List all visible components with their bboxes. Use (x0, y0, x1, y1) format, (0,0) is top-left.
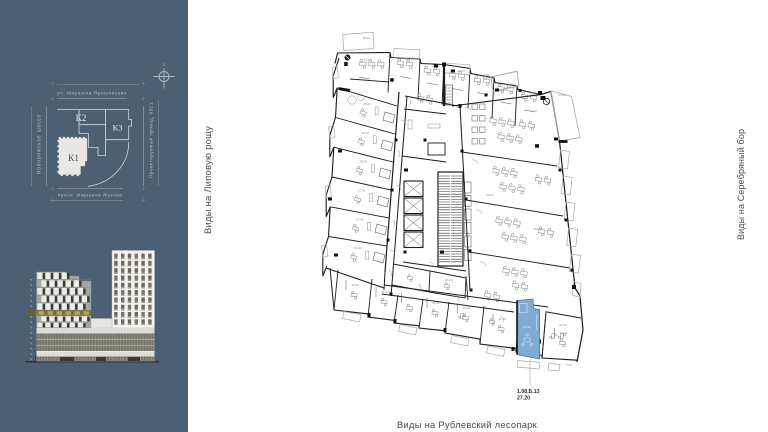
svg-text:27.00: 27.00 (524, 325, 531, 329)
svg-text:17.90: 17.90 (482, 73, 490, 77)
svg-text:31.40: 31.40 (354, 246, 362, 250)
svg-text:19.30: 19.30 (498, 317, 506, 321)
svg-text:29.90: 29.90 (361, 131, 369, 135)
svg-text:просп. Маршала Жукова: просп. Маршала Жукова (58, 193, 123, 199)
svg-text:23.40: 23.40 (356, 217, 364, 221)
svg-text:67.00: 67.00 (364, 58, 372, 62)
svg-text:1.08.Б.13: 1.08.Б.13 (517, 389, 540, 395)
svg-text:27.40: 27.40 (358, 189, 366, 193)
svg-text:8.90: 8.90 (530, 91, 536, 95)
svg-text:24.60: 24.60 (463, 306, 471, 310)
svg-text:36.90: 36.90 (381, 290, 389, 294)
svg-text:К2: К2 (76, 113, 87, 123)
svg-text:Новорижское шоссе: Новорижское шоссе (37, 114, 43, 175)
svg-text:28.40: 28.40 (363, 102, 371, 106)
svg-text:27.20: 27.20 (517, 396, 530, 402)
svg-text:36.00: 36.00 (457, 69, 465, 73)
svg-text:Проектируемый проезд, 6321: Проектируемый проезд, 6321 (148, 102, 154, 178)
svg-text:16.70: 16.70 (506, 83, 514, 87)
svg-text:59.00: 59.00 (486, 193, 494, 197)
svg-text:32.90: 32.90 (351, 283, 359, 287)
svg-text:17.80: 17.80 (558, 93, 566, 97)
svg-text:К3: К3 (112, 123, 122, 133)
svg-text:16.90: 16.90 (363, 36, 370, 40)
svg-text:44.00: 44.00 (529, 109, 537, 113)
svg-text:30.00: 30.00 (407, 296, 415, 300)
svg-text:22.60: 22.60 (559, 323, 567, 327)
svg-text:100.00: 100.00 (533, 227, 543, 231)
svg-text:с: с (163, 62, 166, 67)
svg-text:84.20: 84.20 (445, 278, 453, 282)
svg-text:ул. Маршала Прошлякова: ул. Маршала Прошлякова (57, 90, 127, 96)
svg-text:5.00: 5.00 (566, 363, 572, 367)
svg-text:26.90: 26.90 (432, 301, 440, 305)
svg-text:28.90: 28.90 (360, 160, 368, 164)
svg-text:К1: К1 (68, 154, 79, 164)
